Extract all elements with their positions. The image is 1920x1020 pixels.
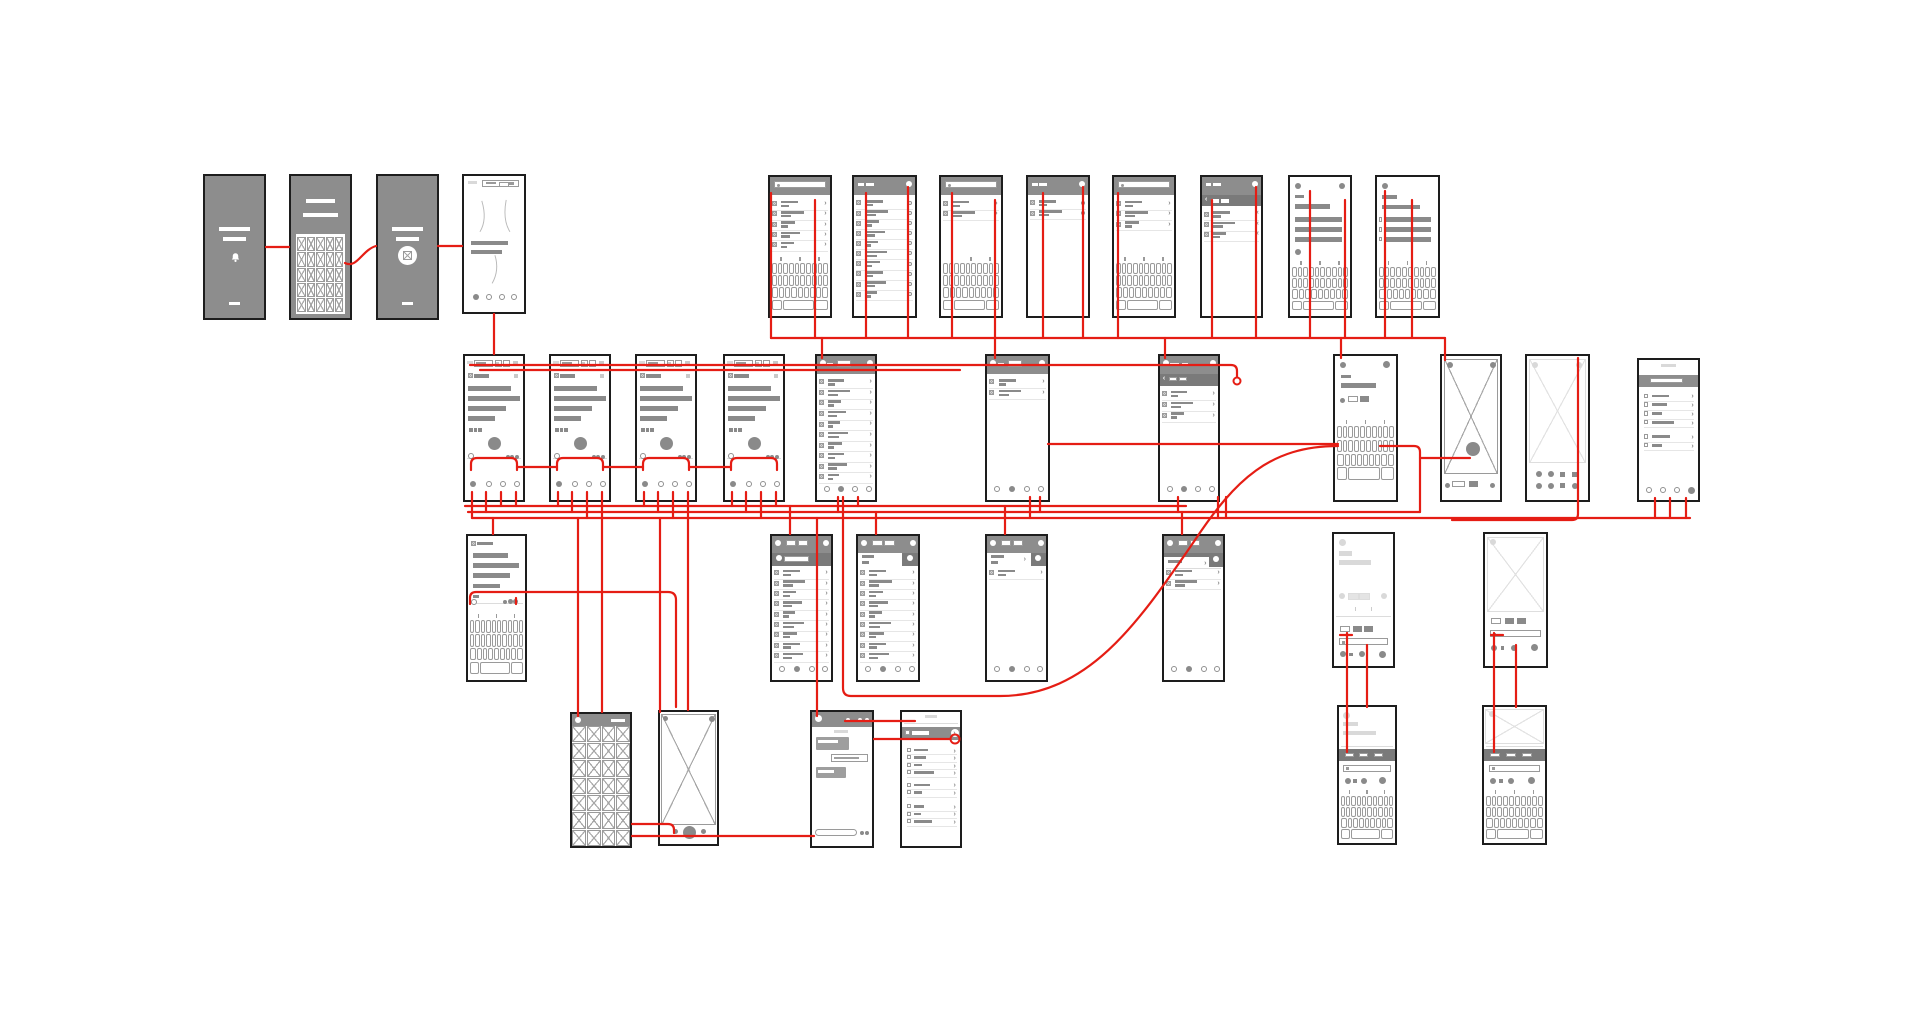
key (1362, 807, 1366, 816)
key (1378, 796, 1382, 805)
bar (554, 386, 597, 391)
list-item-icon (860, 581, 865, 586)
key (1492, 796, 1497, 805)
key-row (943, 300, 999, 311)
box (474, 360, 494, 367)
key (1365, 818, 1370, 827)
bar (468, 406, 505, 411)
bar (914, 784, 930, 787)
pagination-dot (1171, 666, 1177, 672)
bar (783, 636, 790, 639)
key (1521, 796, 1526, 805)
key (1359, 818, 1364, 827)
list-item-icon (1116, 201, 1121, 206)
bar (1171, 395, 1179, 398)
bar (1652, 435, 1670, 438)
box (503, 360, 510, 367)
list-item-icon (1166, 581, 1171, 586)
box (1650, 378, 1683, 383)
bar (866, 285, 875, 288)
square (774, 374, 778, 378)
bar (1171, 406, 1181, 409)
box (905, 730, 910, 735)
bar (866, 291, 877, 294)
key (1129, 287, 1134, 298)
bar (781, 215, 791, 218)
square (555, 428, 559, 432)
chat-conversation-screen (810, 710, 874, 848)
corner-dot (1489, 711, 1495, 717)
key (778, 275, 783, 286)
key (1332, 278, 1337, 288)
bar (828, 446, 834, 449)
list-item-icon (856, 282, 861, 287)
key (1148, 287, 1153, 298)
key (1353, 818, 1358, 827)
bar (991, 561, 998, 564)
box (872, 540, 882, 546)
nav-dot (470, 481, 476, 487)
bar (1382, 205, 1420, 210)
nav-dot (500, 481, 506, 487)
space-key (1348, 467, 1380, 479)
chat-bubble-outgoing (831, 754, 868, 763)
article-screen-3 (635, 354, 697, 502)
search-keyboard-screen-2: ›› (939, 175, 1003, 318)
key (806, 275, 811, 286)
bar (1213, 222, 1235, 225)
close-icon: ✕ (1255, 222, 1259, 227)
bar (306, 199, 336, 204)
tick (799, 257, 801, 261)
box (1489, 765, 1540, 772)
divider (904, 723, 957, 724)
key (1405, 289, 1410, 299)
tick (1533, 790, 1535, 794)
key (977, 263, 982, 274)
box (1013, 540, 1023, 546)
settings-item: › (1644, 419, 1695, 429)
divider-dot (770, 455, 774, 459)
grid-cell (602, 726, 616, 742)
space-key (1351, 829, 1380, 838)
feed-list-screen-long: ›››››››››› (815, 354, 877, 502)
key (818, 263, 823, 274)
bar (783, 643, 799, 646)
key (818, 275, 823, 286)
list-item: › (1162, 411, 1216, 423)
bar (999, 390, 1022, 393)
toolbar-dot (1490, 778, 1496, 784)
bar (828, 457, 836, 460)
divider-dot (601, 455, 605, 459)
box (907, 770, 911, 774)
camera-capture-screen (658, 710, 719, 846)
bar (756, 362, 759, 364)
square (476, 595, 479, 598)
key (812, 263, 817, 274)
send-dot (1531, 644, 1538, 651)
key (1532, 807, 1537, 816)
image-grid (297, 237, 343, 312)
key (1363, 454, 1368, 466)
box (1374, 753, 1383, 758)
key (1292, 278, 1297, 288)
grid-cell (307, 252, 315, 266)
key (960, 275, 965, 286)
list-item-icon (1162, 413, 1167, 418)
box (675, 360, 682, 367)
bar (869, 643, 886, 646)
option-dot (1536, 483, 1542, 489)
bar (866, 204, 874, 207)
key (815, 300, 828, 311)
key (1320, 278, 1325, 288)
chevron-icon: › (1204, 560, 1206, 567)
key (779, 287, 784, 298)
chevron-icon: › (1042, 389, 1044, 396)
key (800, 275, 805, 286)
square (560, 428, 564, 432)
bar (734, 374, 749, 378)
bar (869, 595, 876, 598)
tick (1300, 261, 1302, 265)
key (1367, 807, 1371, 816)
list-item-icon (860, 570, 865, 575)
corner-dot (1576, 362, 1582, 368)
space-key (1303, 301, 1334, 311)
send-dot (1379, 777, 1386, 784)
chevron-icon: › (869, 473, 871, 480)
profile-icon (1215, 540, 1221, 546)
list-item-icon (1116, 222, 1121, 227)
key-row (1116, 300, 1172, 311)
key (486, 620, 490, 632)
bar (1295, 227, 1342, 232)
chevron-icon: › (1040, 569, 1042, 576)
key (950, 287, 955, 298)
bar (866, 271, 883, 274)
bar (562, 362, 572, 364)
bar (866, 200, 883, 203)
corner-dot (1447, 362, 1453, 368)
nav-dot (686, 481, 692, 487)
list-item-icon (856, 241, 861, 246)
radio-icon (908, 251, 912, 255)
key (500, 648, 505, 660)
box (1359, 753, 1368, 758)
square (650, 428, 654, 432)
list-item-icon (772, 211, 777, 216)
divider-dot (510, 455, 514, 459)
bar (783, 570, 799, 573)
list-item-icon (856, 231, 861, 236)
bar (866, 214, 876, 217)
bar (914, 805, 924, 808)
square (734, 428, 738, 432)
key (481, 634, 485, 646)
bar (783, 605, 792, 608)
grid-cell (587, 760, 601, 776)
action-dot (1383, 361, 1390, 368)
key (1315, 278, 1320, 288)
tick (1407, 261, 1409, 265)
bar (582, 362, 585, 364)
list-item: › (774, 651, 829, 662)
tick (496, 614, 498, 618)
box (786, 540, 796, 546)
suggestion-row (1116, 256, 1172, 261)
list-item-icon (1162, 402, 1167, 407)
pagination-dot (909, 666, 915, 672)
bar (1213, 215, 1221, 218)
key-row (470, 620, 524, 632)
key (1431, 267, 1436, 277)
bar (728, 386, 771, 391)
key (1381, 467, 1394, 479)
menu-dot (990, 540, 996, 546)
option-dot (1548, 483, 1554, 489)
grid-cell (307, 237, 315, 251)
key (475, 634, 479, 646)
square (1560, 472, 1565, 477)
box (1343, 765, 1390, 772)
box (907, 755, 911, 759)
square (641, 428, 645, 432)
nav-dot (1009, 486, 1015, 492)
grid-cell (587, 812, 601, 828)
nav-dot (642, 481, 648, 487)
shift-key (470, 648, 476, 660)
toolbar-dot (1361, 778, 1367, 784)
nav-dot (1660, 487, 1666, 493)
list-item: › (989, 568, 1044, 579)
grid-cell (335, 298, 343, 312)
list-item-icon (819, 464, 824, 469)
chat-bubble-incoming (816, 737, 849, 749)
list-item-icon (819, 432, 824, 437)
key (1379, 267, 1384, 277)
keyboard (1379, 260, 1436, 310)
grid-cell (587, 778, 601, 794)
nav-dot (866, 486, 872, 492)
switch-camera-dot (701, 829, 706, 834)
divider-dot (515, 455, 519, 459)
key (1486, 807, 1491, 816)
key (1343, 426, 1348, 438)
bar (1384, 237, 1430, 242)
grid-cell (616, 795, 630, 811)
dot (1381, 593, 1387, 599)
grid-cell (616, 726, 630, 742)
key-row (1341, 829, 1394, 838)
key (475, 620, 479, 632)
key (1396, 278, 1401, 288)
key (1497, 796, 1502, 805)
bar (736, 362, 746, 364)
divider-dot (678, 455, 682, 459)
bar (1171, 391, 1187, 394)
key (1521, 807, 1526, 816)
bar (1168, 560, 1182, 563)
bar (219, 227, 250, 231)
key (966, 263, 971, 274)
chevron-icon: › (1691, 411, 1693, 418)
bar (1213, 225, 1223, 228)
bar (866, 234, 875, 237)
key-row (1341, 807, 1394, 816)
tick (1349, 790, 1351, 794)
key (1373, 807, 1377, 816)
grid-cell (335, 252, 343, 266)
box (589, 360, 596, 367)
key (1378, 807, 1382, 816)
list-item-icon (774, 643, 779, 648)
key (806, 263, 811, 274)
list-item-icon (1204, 222, 1209, 227)
box (1490, 630, 1541, 637)
bar (1182, 363, 1188, 366)
pagination-dot (1186, 666, 1192, 672)
bar (727, 361, 732, 364)
box (1379, 217, 1382, 222)
grid-cell (572, 812, 586, 828)
tick (514, 614, 516, 618)
key (1303, 278, 1308, 288)
box (1001, 540, 1011, 546)
key (1303, 267, 1308, 277)
bar (1652, 403, 1667, 406)
square (1346, 767, 1349, 770)
bar (728, 396, 779, 401)
bar (640, 416, 667, 421)
grid-cell (307, 283, 315, 297)
key (1326, 278, 1331, 288)
bar (1343, 722, 1358, 726)
list-item-icon (860, 643, 865, 648)
close-icon: ✕ (1255, 232, 1259, 237)
pagination-dot (1024, 666, 1030, 672)
flash-dot (673, 829, 678, 834)
bar (473, 584, 500, 589)
key (1378, 440, 1383, 452)
tick (478, 614, 480, 618)
menu-dot (1167, 540, 1173, 546)
key (1150, 263, 1155, 274)
bar (467, 361, 472, 364)
block (1353, 626, 1362, 632)
grid-cell (572, 760, 586, 776)
key (1299, 289, 1304, 299)
key (1515, 796, 1520, 805)
key (1309, 267, 1314, 277)
key (1423, 289, 1428, 299)
grid-cell (326, 298, 334, 312)
grid-cell (326, 252, 334, 266)
chevron-icon: › (825, 631, 827, 638)
key (789, 275, 794, 286)
bar (1384, 217, 1430, 222)
key (1354, 440, 1359, 452)
square (773, 361, 778, 366)
key (772, 275, 777, 286)
square (1499, 779, 1503, 783)
box (1008, 360, 1023, 367)
key (1369, 454, 1374, 466)
pagination-dot (895, 666, 901, 672)
key (1324, 289, 1329, 299)
key-row (1337, 467, 1394, 479)
grid-cell (572, 743, 586, 759)
grid-cell (297, 283, 305, 297)
key (1382, 818, 1387, 827)
key (798, 287, 803, 298)
box (884, 540, 894, 546)
box (837, 360, 851, 367)
key (1372, 440, 1377, 452)
close-icon: ✕ (1255, 211, 1259, 216)
bar (303, 213, 338, 218)
key (1524, 818, 1529, 827)
box (1452, 481, 1465, 487)
key (989, 263, 994, 274)
action-dot (1339, 183, 1345, 189)
wireframe-screens-layer: ››››››››››‹✕✕✕››››››››››››‹›››››››››››››… (0, 0, 1920, 1020)
bar (866, 255, 877, 258)
tabbed-keyboard-screen-2 (1482, 705, 1547, 845)
key (492, 620, 496, 632)
key (804, 287, 809, 298)
bar (998, 363, 1004, 366)
key (1360, 440, 1365, 452)
key (1159, 300, 1172, 311)
nav-dot (572, 481, 578, 487)
bar (866, 251, 888, 254)
key (1381, 454, 1386, 466)
settings-list-screen-bottom: ›››››››››› (900, 710, 962, 848)
nav-dot (1209, 486, 1215, 492)
bar (223, 237, 245, 241)
settings-item: › (907, 818, 957, 827)
key (1116, 275, 1121, 286)
key (1122, 275, 1127, 286)
list-item-icon (774, 591, 779, 596)
image-placeholder (1444, 359, 1499, 474)
key (1387, 289, 1392, 299)
chevron-icon: › (869, 378, 871, 385)
divider-dot (592, 455, 596, 459)
bar (952, 201, 969, 204)
list-item-icon (860, 591, 865, 596)
bar (1125, 225, 1132, 228)
key (1414, 278, 1419, 288)
toolbar-dot (1490, 483, 1495, 488)
bar (1039, 214, 1049, 217)
shift-key (772, 287, 779, 298)
key (1135, 287, 1140, 298)
list-item-icon (989, 379, 994, 384)
key (1122, 263, 1127, 274)
profile-icon (910, 540, 916, 546)
key (1341, 829, 1350, 838)
key (506, 648, 511, 660)
key (960, 263, 965, 274)
list-item (856, 290, 913, 301)
bar (828, 383, 836, 386)
key (795, 275, 800, 286)
list-item-icon (1116, 211, 1121, 216)
list-item-icon (819, 422, 824, 427)
